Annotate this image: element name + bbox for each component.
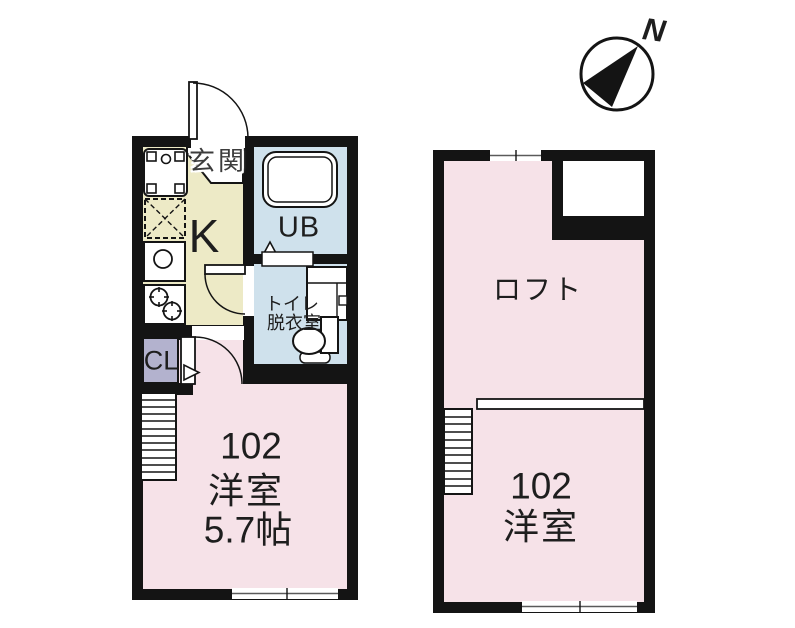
toilet-label: トイレ [265,295,319,313]
wall-toilet-room [254,364,347,384]
loft-label: ロフト [493,276,583,304]
floor-plan-image: 玄関 K UB トイレ 脱衣室 CL 102 洋室 5.7帖 ロフト 102 洋… [0,0,795,628]
void-wall-left [552,150,563,216]
loft-railing [477,399,644,409]
bathtub [263,152,337,207]
room1-name: 洋室 [208,473,284,509]
north-label: N [641,13,667,47]
loft-ladder-1f [141,393,176,480]
kitchen-label: K [189,213,220,259]
kitchen-counter-sink [144,149,187,196]
loft-ladder-2f [444,409,472,494]
entrance-door-arc [193,83,248,138]
window-loft-top [490,150,541,161]
window-loft-bottom [522,601,637,612]
bath-door [262,252,313,266]
entrance-door-leaf [189,82,197,139]
entrance-label: 玄関 [189,148,247,174]
window-1f [232,588,338,599]
unit-bath-label: UB [278,214,320,243]
toilet-door-leaf [205,265,245,274]
room1-number: 102 [220,428,282,465]
stove [144,285,185,324]
room2-number: 102 [510,468,572,505]
closet-label: CL [144,348,179,375]
compass [581,38,653,110]
void-wall-bottom [552,216,655,240]
room1-size: 5.7帖 [204,512,292,549]
floor-plan-drawing [0,0,795,628]
dressing-room-label: 脱衣室 [267,314,321,332]
faucet-icon [162,155,171,164]
room2-name: 洋室 [503,509,579,545]
void-space [563,161,644,216]
sink-unit [144,242,185,281]
